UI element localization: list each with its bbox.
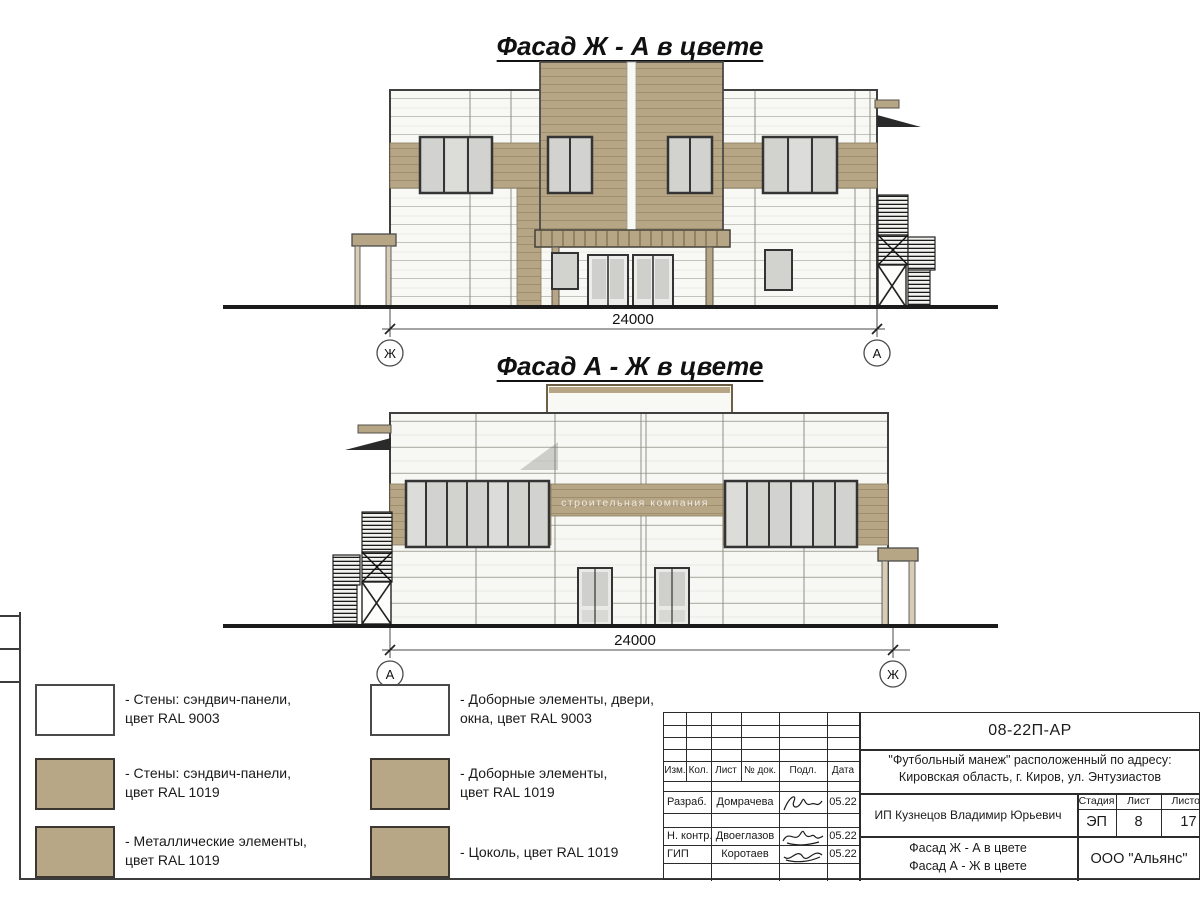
axis-label: А	[873, 346, 882, 361]
tb-sheets-value: 17	[1161, 809, 1200, 836]
tb-company: ООО "Альянс"	[1077, 836, 1200, 881]
legend-item: - Доборные элементы, цвет RAL 1019	[370, 758, 607, 810]
facade2-dimension-value: 24000	[614, 632, 656, 649]
sheet-frame-tick	[0, 681, 19, 683]
facade1-exterior-stairs	[875, 100, 935, 307]
tb-project-address-2: Кировская область, г. Киров, ул. Энтузиа…	[859, 770, 1200, 784]
window-ribbon	[725, 481, 857, 547]
tb-name: Коротаев	[711, 845, 779, 863]
tb-sheet-value: 8	[1116, 809, 1161, 836]
tb-role: Н. контр.	[667, 827, 712, 845]
tb-sheet-label: Лист	[1116, 793, 1161, 809]
sheet-frame-tick	[0, 615, 19, 617]
window-group	[548, 137, 592, 193]
tb-col-kol: Кол.	[686, 761, 711, 781]
legend-label: - Доборные элементы, цвет RAL 1019	[460, 758, 607, 810]
facade2-exterior-stairs	[333, 425, 392, 624]
axis-label: Ж	[384, 346, 396, 361]
tb-name: Двоеглазов	[711, 827, 779, 845]
axis-label: Ж	[887, 667, 899, 682]
signature-icon	[781, 845, 825, 863]
tb-date: 05.22	[827, 845, 859, 863]
legend-label: - Металлические элементы, цвет RAL 1019	[125, 826, 307, 878]
legend-swatch-ral1019	[370, 826, 450, 878]
signature-icon	[781, 792, 825, 814]
small-window	[552, 253, 578, 289]
legend-label: - Стены: сэндвич-панели, цвет RAL 9003	[125, 684, 291, 736]
tb-col-doc: № док.	[741, 761, 779, 781]
watermark-text: строительная компания	[561, 497, 709, 509]
tb-col-list: Лист	[711, 761, 741, 781]
tb-col-data: Дата	[827, 761, 859, 781]
single-door	[655, 568, 689, 626]
legend-item: - Цоколь, цвет RAL 1019	[370, 826, 618, 878]
tb-name: Домрачева	[711, 791, 779, 813]
tb-date: 05.22	[827, 791, 859, 813]
window-ribbon	[406, 481, 549, 547]
legend-swatch-ral9003	[35, 684, 115, 736]
tb-stage-label: Стадия	[1077, 793, 1116, 809]
sheet-frame-tick	[0, 648, 19, 650]
tb-doc-number: 08-22П-АР	[859, 716, 1200, 746]
signature-icon	[781, 827, 825, 845]
tb-client: ИП Кузнецов Владимир Юрьевич	[861, 793, 1075, 836]
facade2-drawing: строительная компания 24000 А Ж	[215, 370, 1005, 700]
facade1-side-canopy	[352, 234, 396, 307]
axis-label: А	[386, 667, 395, 682]
legend-item: - Стены: сэндвич-панели, цвет RAL 1019	[35, 758, 291, 810]
tb-date: 05.22	[827, 827, 859, 845]
facade1-dimension-value: 24000	[612, 311, 654, 328]
tb-role: Разраб.	[667, 791, 707, 813]
legend-item: - Металлические элементы, цвет RAL 1019	[35, 826, 307, 878]
single-door	[578, 568, 612, 626]
window-group	[420, 137, 492, 193]
legend-label: - Стены: сэндвич-панели, цвет RAL 1019	[125, 758, 291, 810]
legend-item: - Доборные элементы, двери, окна, цвет R…	[370, 684, 654, 736]
legend-item: - Стены: сэндвич-панели, цвет RAL 9003	[35, 684, 291, 736]
tb-project-address-1: "Футбольный манеж" расположенный по адре…	[859, 753, 1200, 767]
sheet-frame-left-line	[19, 612, 21, 880]
window-group	[668, 137, 712, 193]
legend-label: - Цоколь, цвет RAL 1019	[460, 826, 618, 878]
tb-col-podp: Подл.	[779, 761, 827, 781]
legend-swatch-ral1019	[35, 758, 115, 810]
tb-stage-value: ЭП	[1077, 809, 1116, 836]
facade1-drawing: 24000 Ж А	[215, 45, 1005, 375]
window-group	[763, 137, 837, 193]
tb-role: ГИП	[667, 845, 689, 863]
facade1-axis-markers: Ж А	[377, 340, 890, 366]
tb-sheets-label: Листов	[1161, 793, 1200, 809]
tb-col-izm: Изм.	[664, 761, 686, 781]
double-door	[633, 255, 673, 307]
facade2-side-canopy	[878, 548, 918, 626]
legend-label: - Доборные элементы, двери, окна, цвет R…	[460, 684, 654, 736]
tb-drawing-title-2: Фасад А - Ж в цвете	[859, 859, 1077, 873]
legend-swatch-ral9003	[370, 684, 450, 736]
legend-swatch-ral1019	[370, 758, 450, 810]
drawing-sheet: { "facade1": { "title": "Фасад Ж - А в ц…	[0, 0, 1200, 900]
legend-swatch-ral1019	[35, 826, 115, 878]
small-window	[765, 250, 792, 290]
double-door	[588, 255, 628, 307]
tb-drawing-title-1: Фасад Ж - А в цвете	[859, 841, 1077, 855]
title-block: Изм. Кол. Лист № док. Подл. Дата Разраб.…	[663, 712, 1200, 880]
